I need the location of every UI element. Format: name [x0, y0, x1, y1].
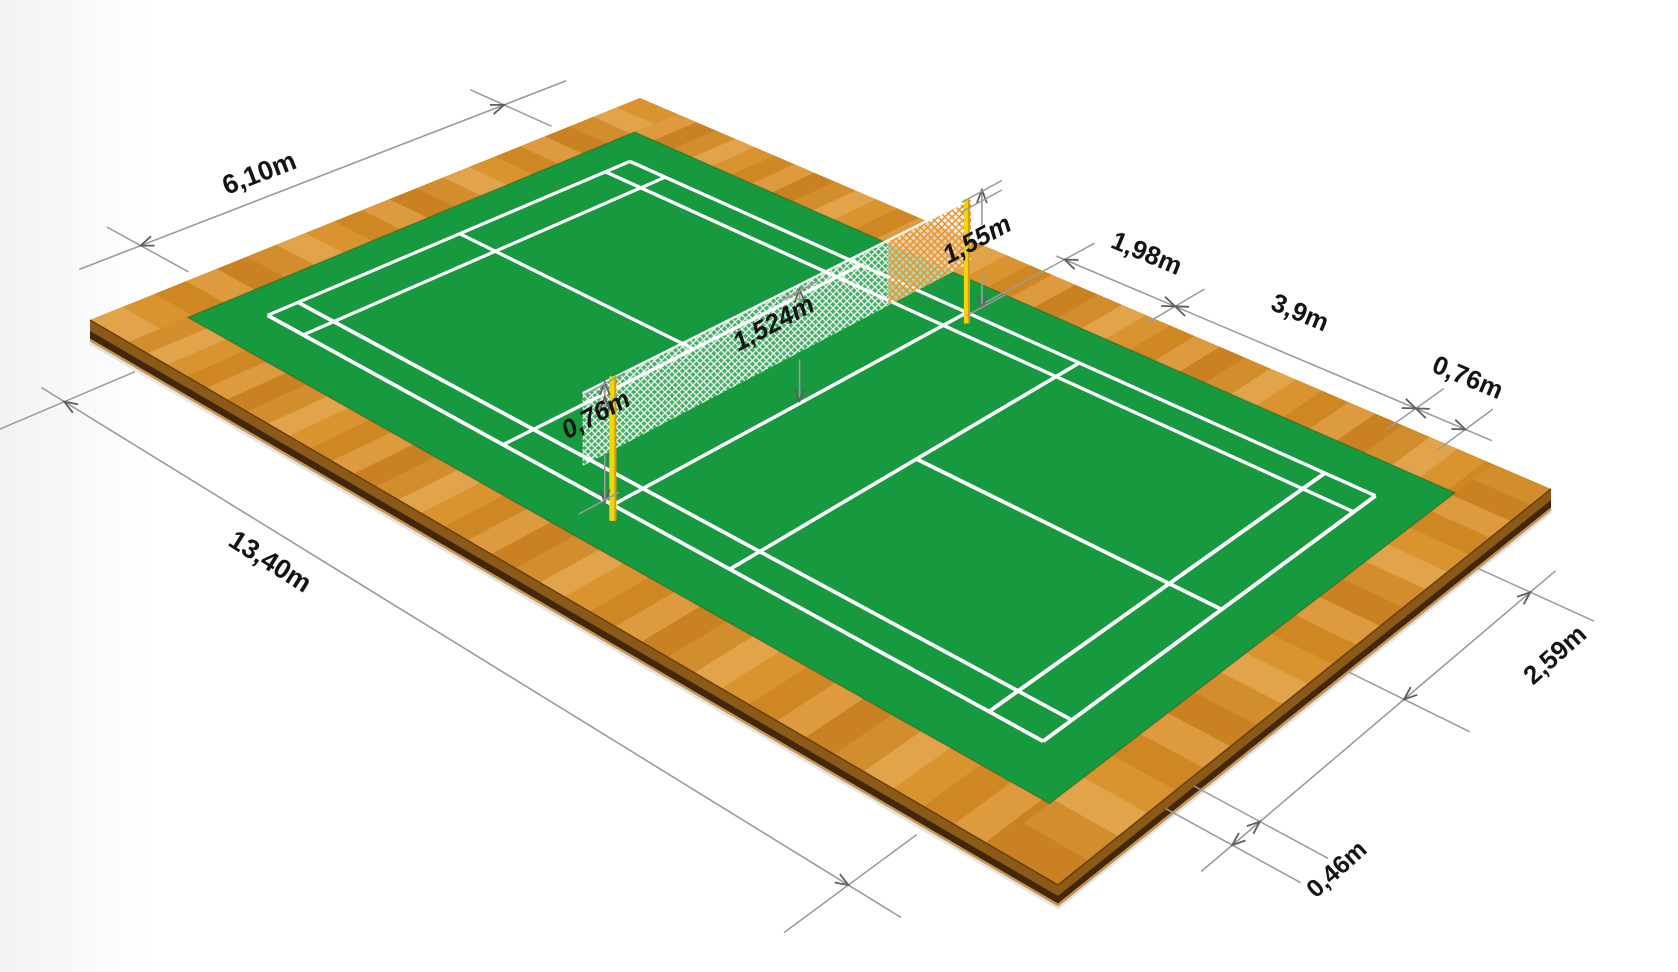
- court-diagram-canvas: 6,10m13,40m1,98m3,9m0,76m2,59m0,46m1,55m…: [0, 0, 1678, 972]
- badminton-court-diagram: 6,10m13,40m1,98m3,9m0,76m2,59m0,46m1,55m…: [0, 0, 1678, 972]
